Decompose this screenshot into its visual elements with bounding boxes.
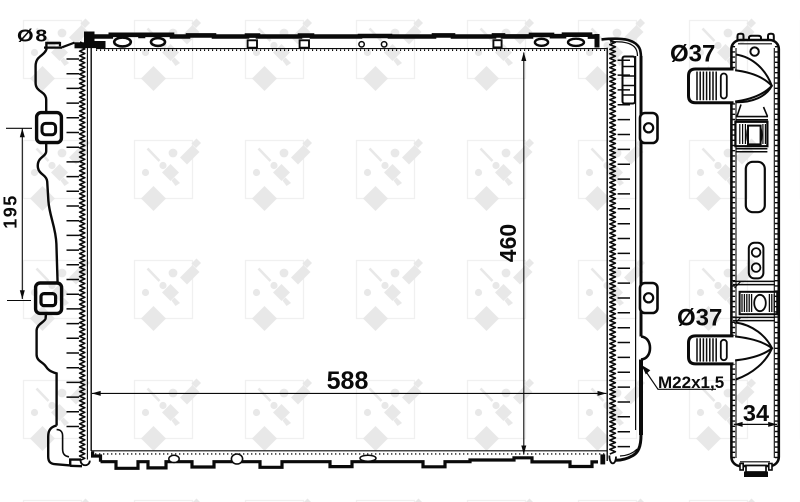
svg-text:460: 460 bbox=[495, 224, 521, 262]
svg-text:M22x1,5: M22x1,5 bbox=[658, 373, 724, 392]
svg-text:588: 588 bbox=[327, 367, 369, 395]
svg-text:Ø37: Ø37 bbox=[670, 41, 715, 68]
svg-text:34: 34 bbox=[743, 400, 769, 426]
svg-text:195: 195 bbox=[1, 194, 21, 229]
svg-text:Ø37: Ø37 bbox=[677, 305, 722, 332]
svg-text:Ø8: Ø8 bbox=[17, 26, 49, 46]
